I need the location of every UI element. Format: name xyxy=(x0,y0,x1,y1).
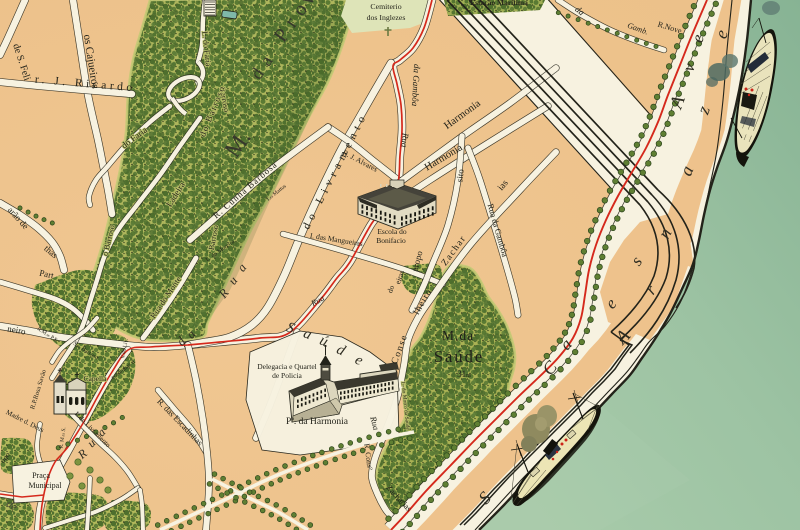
svg-text:sito: sito xyxy=(454,168,466,183)
svg-text:Saúde: Saúde xyxy=(434,347,484,366)
svg-text:Capella: Capella xyxy=(84,374,108,383)
svg-text:de Policia: de Policia xyxy=(272,371,302,380)
svg-text:Bonifacio: Bonifacio xyxy=(376,236,406,245)
svg-text:Escola do: Escola do xyxy=(377,227,407,236)
svg-text:M.da: M.da xyxy=(442,328,474,343)
svg-text:dos Inglezes: dos Inglezes xyxy=(367,13,406,22)
svg-text:Delegacia e Quartel: Delegacia e Quartel xyxy=(257,362,317,371)
svg-text:Municipal: Municipal xyxy=(29,481,63,490)
svg-text:Cemiterio: Cemiterio xyxy=(370,2,401,11)
svg-text:Pª. da Harmonia: Pª. da Harmonia xyxy=(286,417,349,427)
svg-text:Rua: Rua xyxy=(399,132,410,149)
svg-text:Estação Maritima: Estação Maritima xyxy=(470,0,528,7)
svg-text:Praça: Praça xyxy=(32,471,50,480)
